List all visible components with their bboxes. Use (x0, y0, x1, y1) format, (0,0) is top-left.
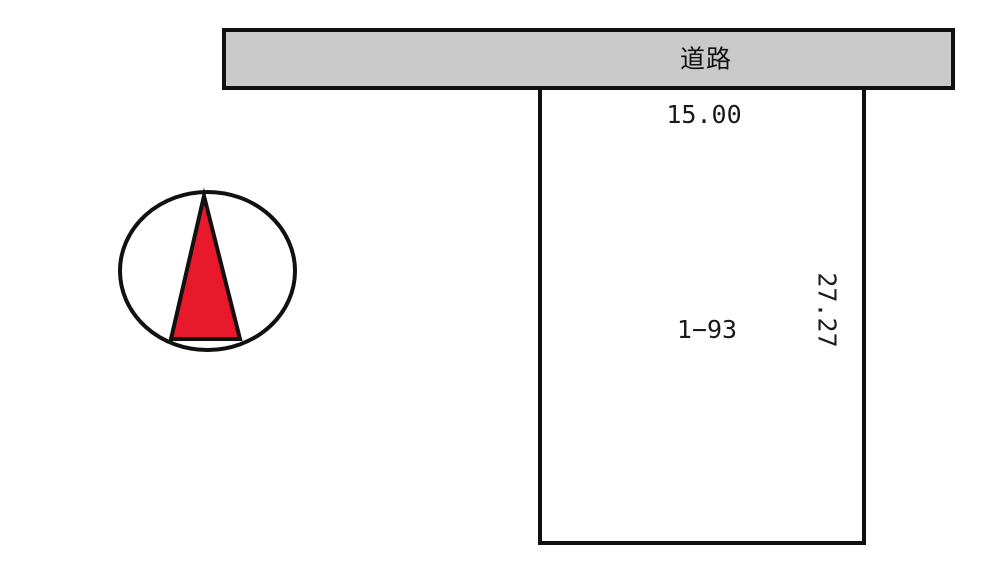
frontage-dimension: 15.00 (666, 102, 741, 127)
north-arrow-triangle (171, 196, 240, 339)
road-label: 道路 (680, 40, 732, 76)
land-plot-diagram: 道路 15.00 1−93 27.27 (0, 0, 1000, 563)
north-arrow-icon (108, 185, 308, 360)
depth-dimension: 27.27 (815, 272, 840, 347)
road-bar: 道路 (222, 28, 955, 90)
lot-number: 1−93 (677, 317, 737, 342)
